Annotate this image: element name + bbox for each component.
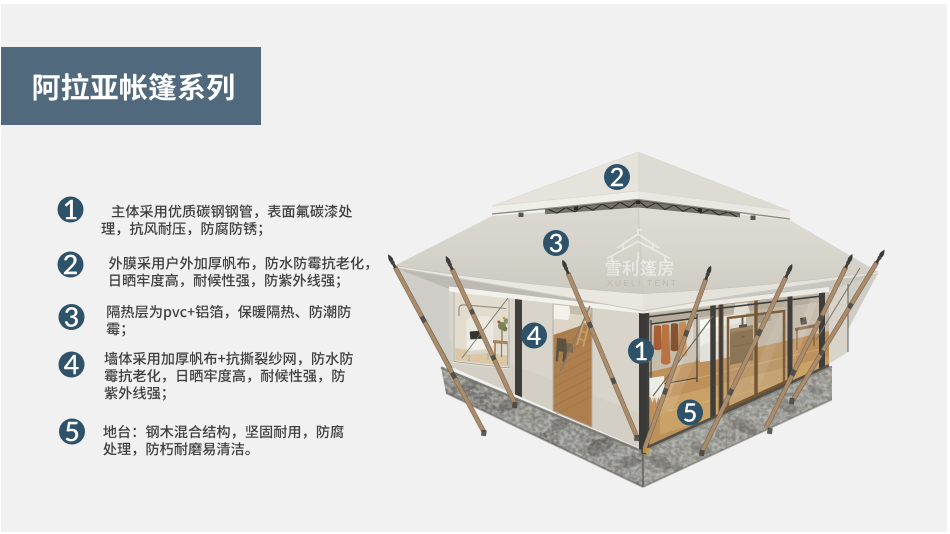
svg-text:XUELI TENT: XUELI TENT	[607, 278, 678, 288]
